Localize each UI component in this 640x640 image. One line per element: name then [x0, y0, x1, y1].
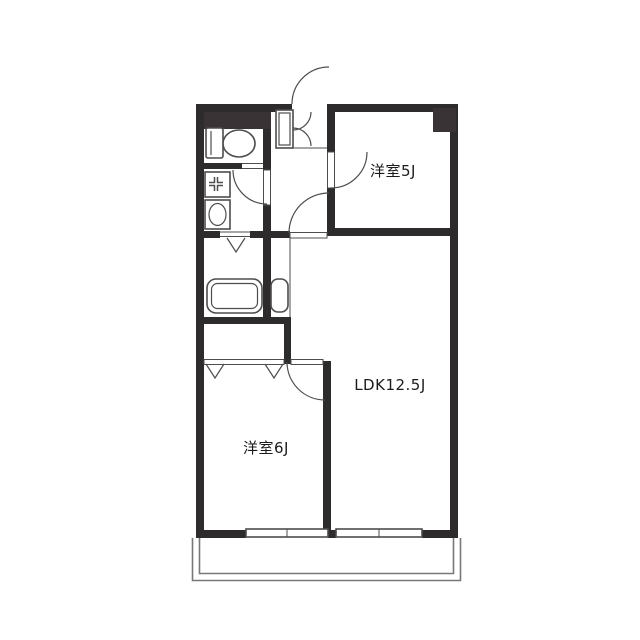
closet-door-line: [204, 360, 284, 365]
label-western-room-5j: 洋室5J: [370, 162, 416, 180]
window-ldk: [336, 529, 422, 537]
shoe-cabinet-icon: [276, 110, 293, 148]
wall-toilet-bottom: [204, 163, 242, 169]
toilet-icon: [206, 128, 255, 158]
wall-bath-top-east: [250, 231, 290, 238]
wall-bath-bottom: [196, 317, 291, 324]
washroom-doorway: [264, 170, 271, 205]
bathtub-icon: [207, 279, 262, 313]
wall-bottom-left: [196, 530, 246, 538]
wall-bottom-right: [422, 530, 458, 538]
wall-closet-east: [284, 317, 291, 364]
wall-right: [450, 104, 458, 538]
wall-bath-top-west: [204, 231, 220, 238]
washbasin-icon: [205, 200, 230, 229]
label-western-room-6j: 洋室6J: [243, 439, 289, 457]
page-background: [0, 0, 640, 640]
wall-bottom-center: [328, 530, 336, 538]
wall-6j-ldk-divider: [323, 361, 331, 530]
vanity-cabinet-icon: [271, 279, 288, 312]
wall-hall-east-upper: [327, 104, 335, 152]
pipe-space-top-right: [433, 108, 456, 132]
wall-5j-bottom: [327, 228, 458, 236]
label-ldk: LDK12.5J: [354, 376, 426, 394]
floor-plan: 洋室5J LDK12.5J 洋室6J: [0, 0, 640, 640]
washing-machine-pan-icon: [205, 172, 230, 197]
window-room6j: [246, 529, 328, 537]
floor-plan-page: 洋室5J LDK12.5J 洋室6J: [0, 0, 640, 640]
ldk-doorway-sill: [290, 233, 327, 239]
room5j-doorway: [328, 152, 335, 188]
wall-bathroom-east: [263, 238, 271, 318]
pipe-space-top-left: [204, 112, 271, 129]
room6j-doorway-sill: [291, 360, 323, 365]
